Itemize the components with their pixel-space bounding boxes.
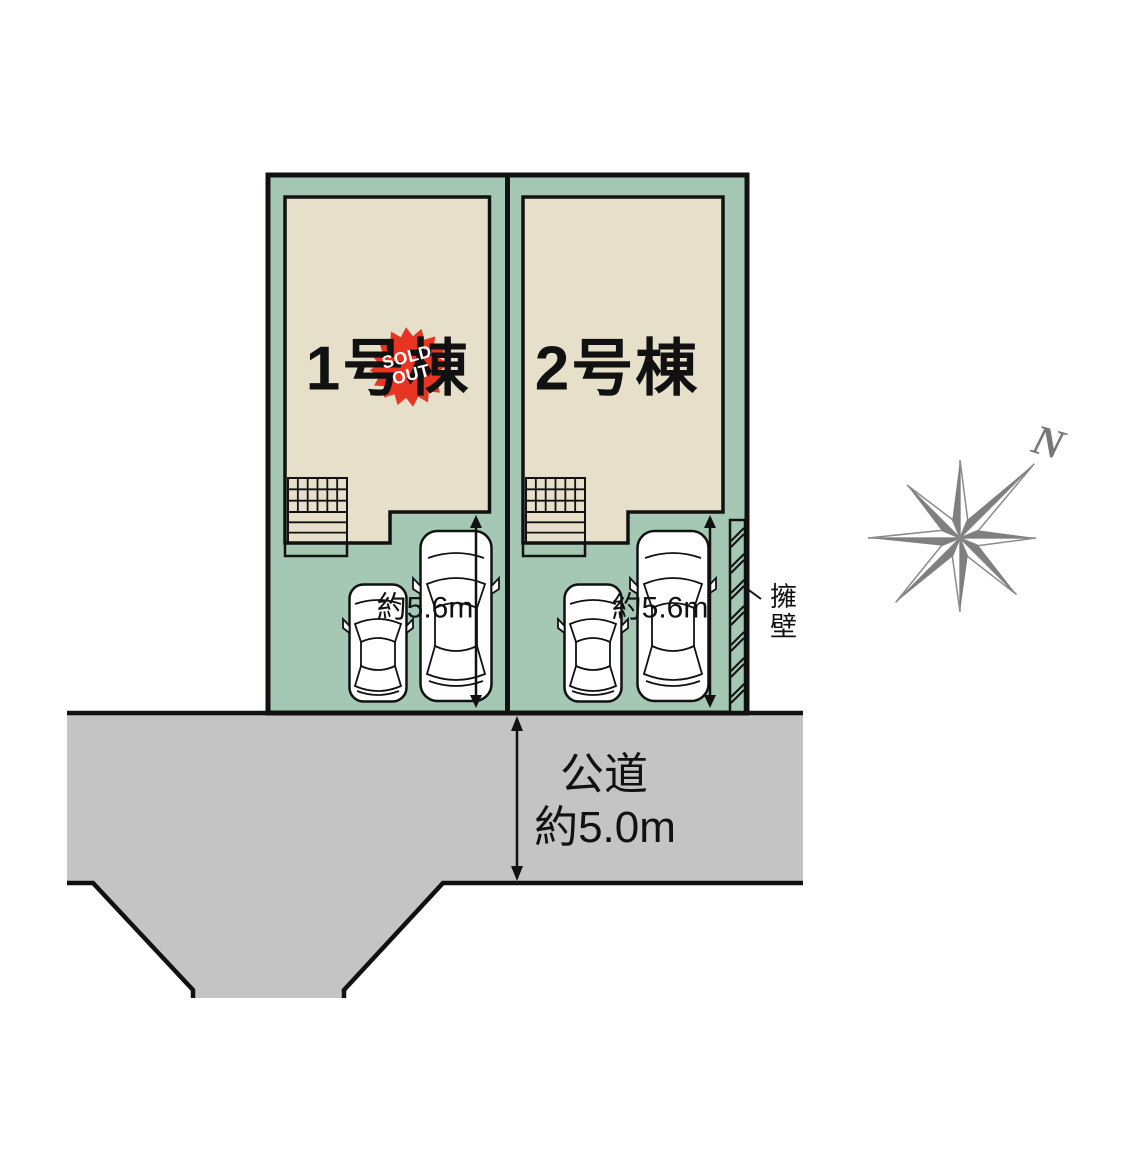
site-plan-svg bbox=[0, 0, 1144, 1173]
road-surface bbox=[67, 713, 803, 998]
site-plan: 1号棟 2号棟 SOLD OUT 約5.6m 約5.6m 擁壁 公道 約5.0m… bbox=[0, 0, 1144, 1173]
lot1-parking-depth-label: 約5.6m bbox=[377, 592, 474, 624]
road-name-label: 公道 bbox=[560, 752, 648, 798]
lot2-parking-depth-label: 約5.6m bbox=[612, 592, 709, 624]
compass-rose bbox=[868, 460, 1036, 612]
retaining-wall-label: 擁壁 bbox=[762, 582, 801, 642]
lot2-label: 2号棟 bbox=[535, 336, 699, 401]
road-width-label: 約5.0m bbox=[534, 805, 676, 851]
